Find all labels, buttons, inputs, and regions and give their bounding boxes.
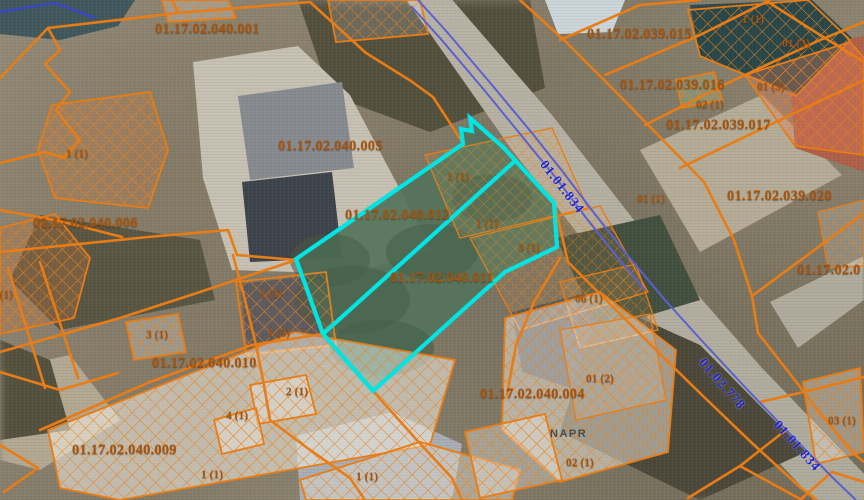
parcel-boundary-line [560, 0, 700, 40]
parcel-boundary-line [0, 372, 118, 390]
building-hatch [465, 414, 562, 498]
building-hatch [818, 200, 864, 268]
parcel-boundary-line [740, 430, 786, 466]
building-hatch [328, 0, 428, 42]
parcel-boundary-line [0, 445, 38, 492]
cadastral-overlay [0, 0, 864, 500]
building-hatch [803, 368, 864, 464]
map-viewport[interactable]: 01.17.02.040.00101.17.02.039.01501.17.02… [0, 0, 864, 500]
parcel-boundary-line [0, 152, 45, 163]
parcel-boundary-line [688, 466, 802, 500]
building-hatch [126, 314, 186, 360]
road-centerline [0, 3, 95, 18]
building-hatch [560, 314, 666, 420]
